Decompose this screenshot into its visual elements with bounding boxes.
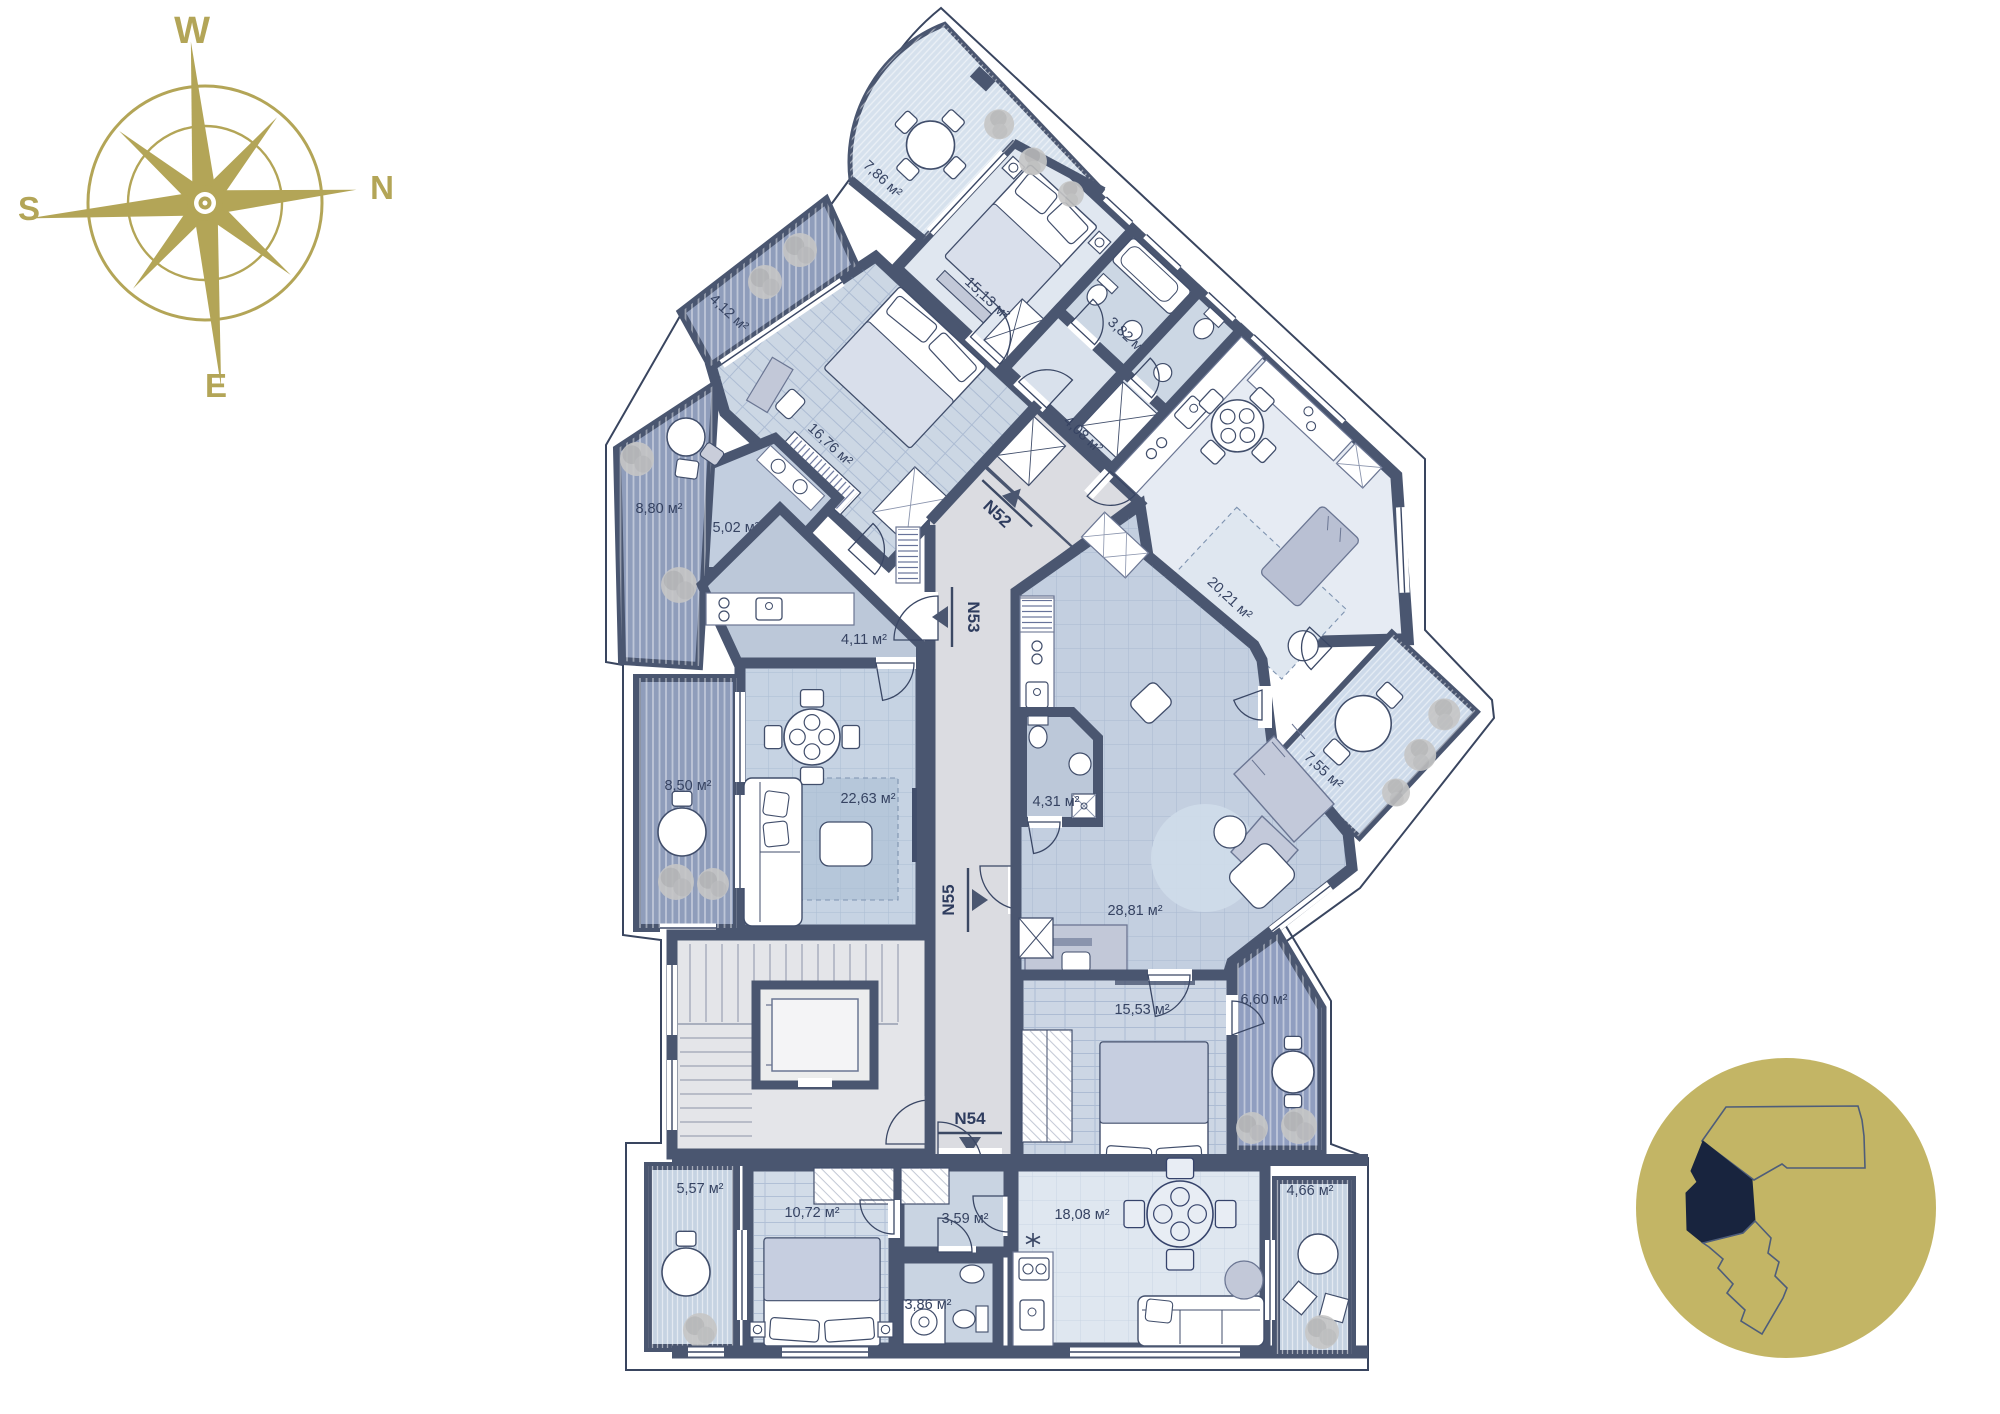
svg-text:3,86 м²: 3,86 м² [904, 1297, 951, 1313]
svg-text:10,72 м²: 10,72 м² [784, 1205, 839, 1221]
svg-text:W: W [174, 10, 210, 52]
svg-text:N54: N54 [954, 1109, 986, 1128]
svg-text:4,31 м²: 4,31 м² [1032, 794, 1079, 810]
svg-text:15,53 м²: 15,53 м² [1114, 1002, 1169, 1018]
svg-text:4,11 м²: 4,11 м² [841, 632, 887, 648]
svg-text:N: N [370, 169, 394, 206]
svg-text:28,81 м²: 28,81 м² [1107, 903, 1162, 919]
svg-text:6,60 м²: 6,60 м² [1240, 992, 1287, 1008]
svg-text:E: E [205, 367, 227, 404]
svg-text:5,57 м²: 5,57 м² [676, 1181, 723, 1197]
svg-text:18,08 м²: 18,08 м² [1054, 1207, 1109, 1223]
svg-text:8,80 м²: 8,80 м² [635, 501, 682, 517]
svg-text:N55: N55 [939, 884, 958, 915]
svg-text:S: S [18, 190, 40, 227]
svg-text:4,66 м²: 4,66 м² [1286, 1183, 1333, 1199]
svg-text:22,63 м²: 22,63 м² [840, 791, 895, 807]
svg-text:N53: N53 [964, 601, 983, 632]
svg-text:8,50 м²: 8,50 м² [664, 778, 711, 794]
